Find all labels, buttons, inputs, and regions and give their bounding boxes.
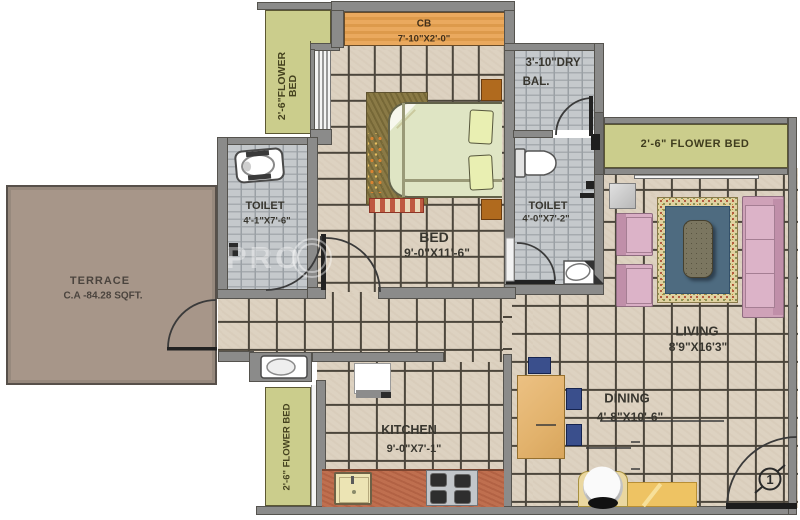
- svg-text:1: 1: [766, 472, 773, 487]
